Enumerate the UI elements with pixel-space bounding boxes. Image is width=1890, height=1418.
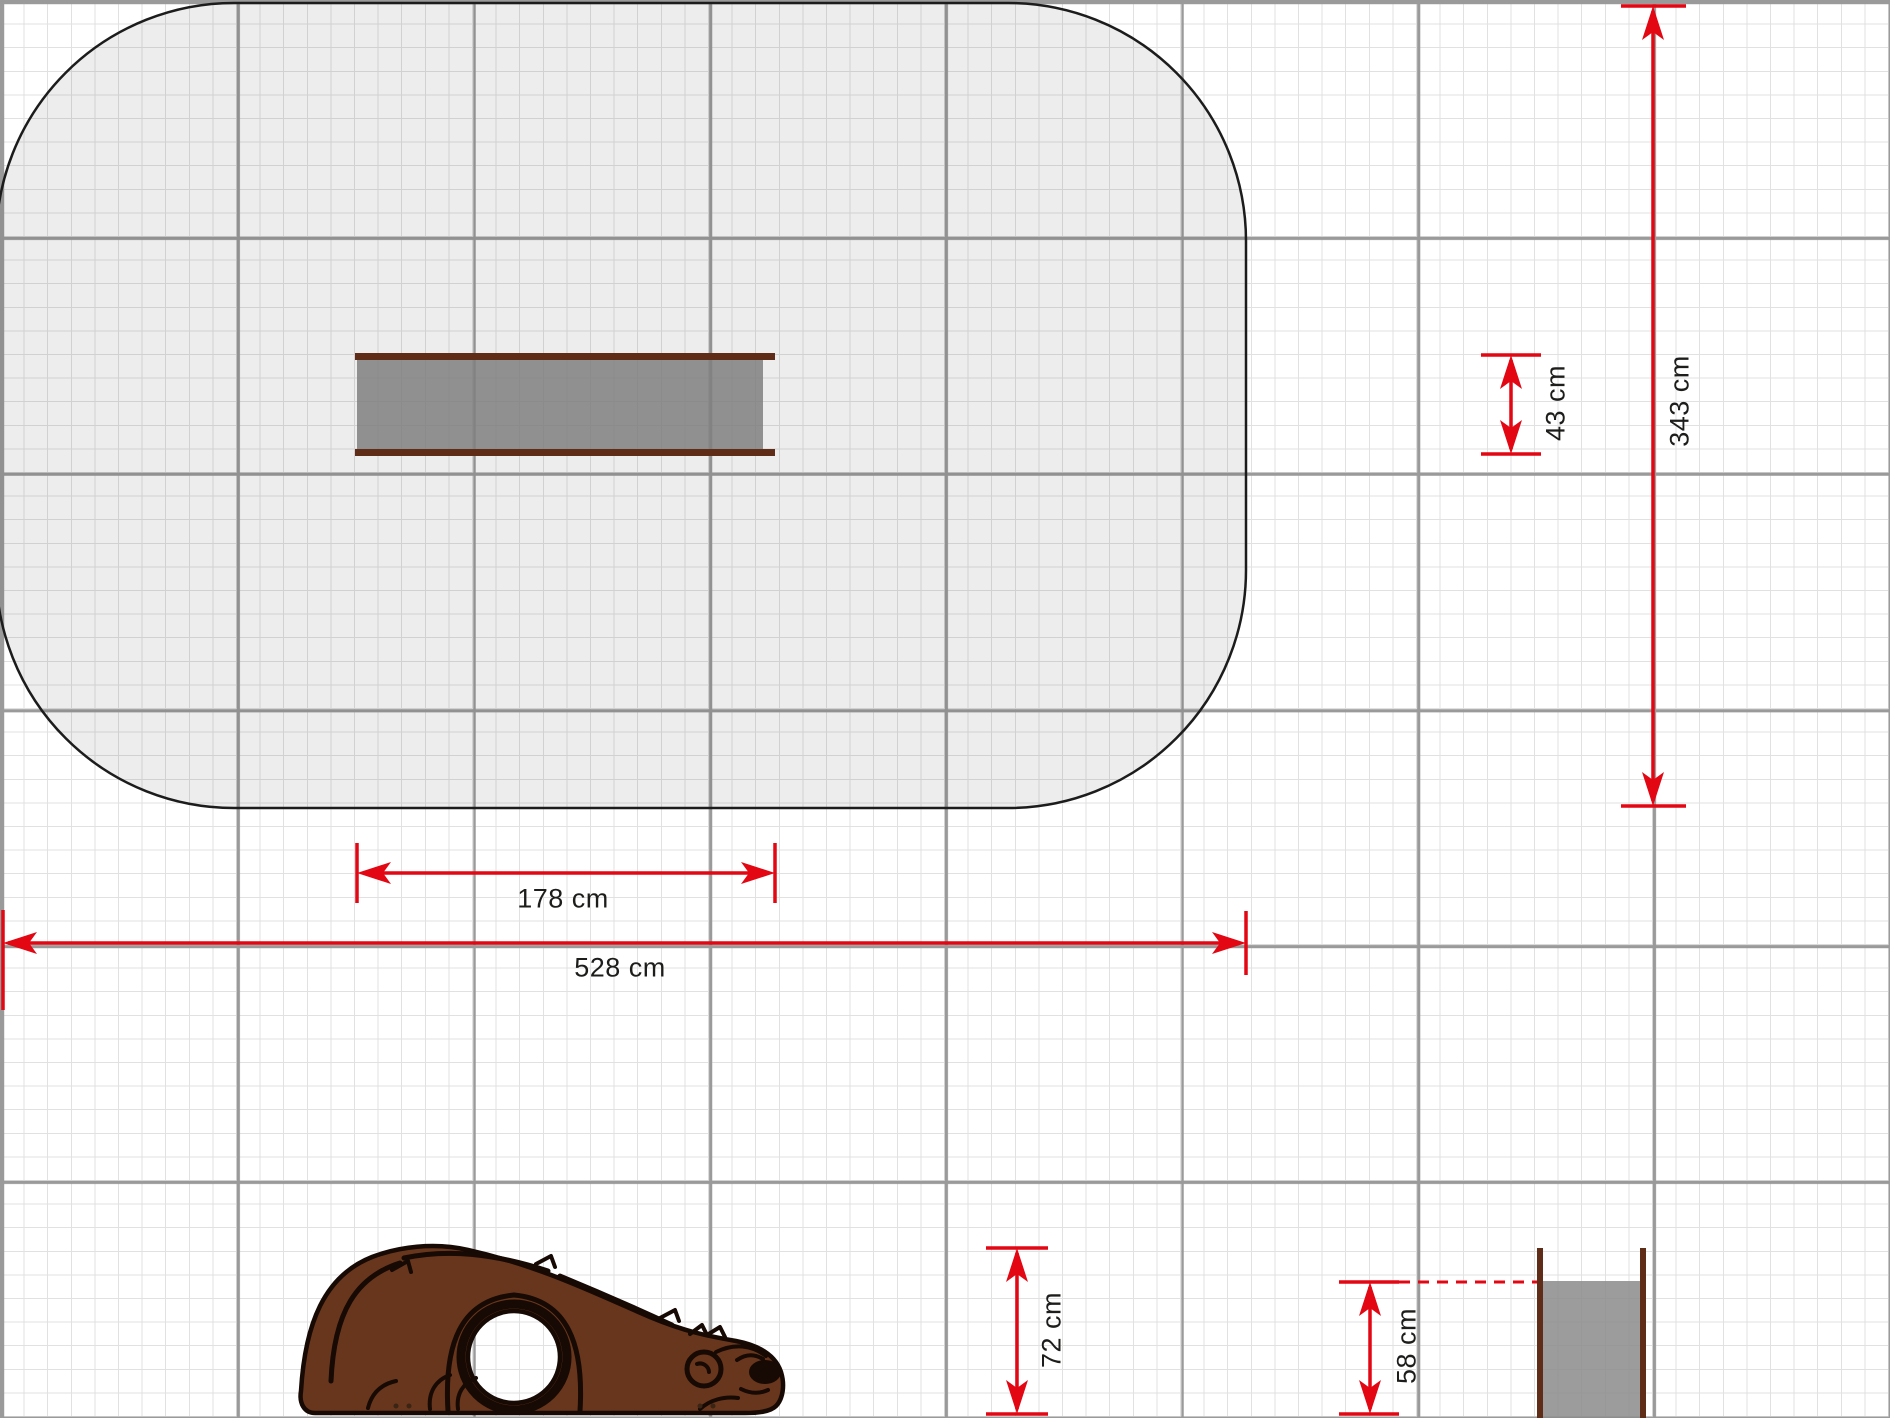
crawl-hole-ring [461,1304,567,1410]
dimension-43 [1481,355,1541,454]
dim-343-label: 343 cm [1665,355,1696,447]
bear-ear [687,1352,721,1386]
dim-178-label: 178 cm [517,884,609,915]
bear-side-view-illustration [301,1246,783,1413]
dot [407,1404,412,1409]
bear-nose [749,1360,781,1384]
dim-72-label: 72 cm [1037,1292,1068,1368]
dot [711,1404,716,1409]
front-view-panel [1542,1281,1641,1418]
drawing-canvas: 178 cm 528 cm 43 cm 343 cm 72 cm 58 cm [0,0,1890,1418]
front-view-post-right [1640,1248,1646,1418]
dim-43-label: 43 cm [1541,365,1572,441]
bear-front-view [1537,1248,1646,1418]
equipment-footprint-top-view [355,353,775,456]
technical-drawing [0,0,1890,1418]
equipment-bottom-edge [355,449,775,456]
equipment-footprint-fill [357,358,763,452]
dim-58-label: 58 cm [1392,1308,1423,1384]
fur-zigzag-2 [536,1256,555,1267]
equipment-top-edge [355,353,775,360]
front-view-post-left [1537,1248,1543,1418]
dim-528-label: 528 cm [574,953,666,984]
dot [394,1404,399,1409]
dimension-58 [1339,1282,1537,1414]
dot [698,1404,703,1409]
